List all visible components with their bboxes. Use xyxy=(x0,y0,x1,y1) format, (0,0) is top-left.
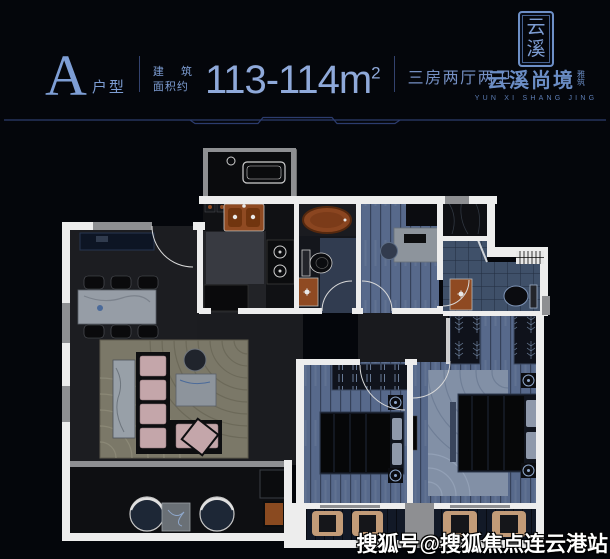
bathtub-inner xyxy=(310,212,344,228)
bath-main-tilezone xyxy=(320,238,358,313)
bed-bench xyxy=(450,402,456,462)
wardrobe-master-left xyxy=(450,316,480,364)
bed-master xyxy=(458,394,540,472)
fan-chair-1 xyxy=(130,497,164,531)
watermark: 搜狐号@搜狐焦点连云港站 xyxy=(357,528,608,558)
toilet-second xyxy=(504,285,537,308)
dining-table-decor xyxy=(97,305,103,311)
header-rule xyxy=(4,118,606,124)
bedroom-second xyxy=(320,364,408,483)
dining-table xyxy=(78,290,156,324)
planter-box xyxy=(260,470,288,498)
side-table-round xyxy=(184,349,206,371)
dining-area xyxy=(78,233,158,338)
fridge xyxy=(204,285,248,311)
stove xyxy=(267,240,294,284)
desk-monitor xyxy=(404,234,426,243)
desk xyxy=(394,228,439,262)
dining-chairs-top xyxy=(84,276,158,289)
wall-tv xyxy=(413,416,417,450)
wardrobe-gap-floor xyxy=(480,316,514,364)
vanity-main xyxy=(297,278,318,306)
planter-pot xyxy=(264,502,284,526)
utility-balcony-floor xyxy=(207,150,296,200)
tv-console xyxy=(113,360,135,438)
nightstand-lamp-3 xyxy=(521,373,536,388)
coffee-table xyxy=(176,374,216,406)
balcony-table xyxy=(162,503,190,531)
fan-chair-2 xyxy=(200,497,234,531)
tub-faucet xyxy=(344,219,347,222)
hallway-floor xyxy=(358,313,448,362)
desk-chair xyxy=(381,243,398,260)
kitchen-island xyxy=(206,232,264,284)
wardrobe-second xyxy=(332,364,408,390)
sideboard xyxy=(80,233,154,250)
floorplan xyxy=(20,148,604,548)
nightstand-lamp-2 xyxy=(388,468,403,483)
kitchen-sink xyxy=(224,204,264,231)
bath-second-window xyxy=(516,251,544,264)
appliance-dot-1 xyxy=(208,205,212,209)
sideboard-decor xyxy=(96,236,108,242)
windows xyxy=(516,251,544,264)
appliance-dot-2 xyxy=(220,205,224,209)
study-cabinet xyxy=(406,202,437,226)
floorplan-svg xyxy=(0,0,610,559)
nightstand-lamp-4 xyxy=(521,463,536,478)
lounge-cushion-1 xyxy=(319,515,336,532)
dining-chairs-bottom xyxy=(84,325,158,338)
bed-second xyxy=(320,412,404,474)
